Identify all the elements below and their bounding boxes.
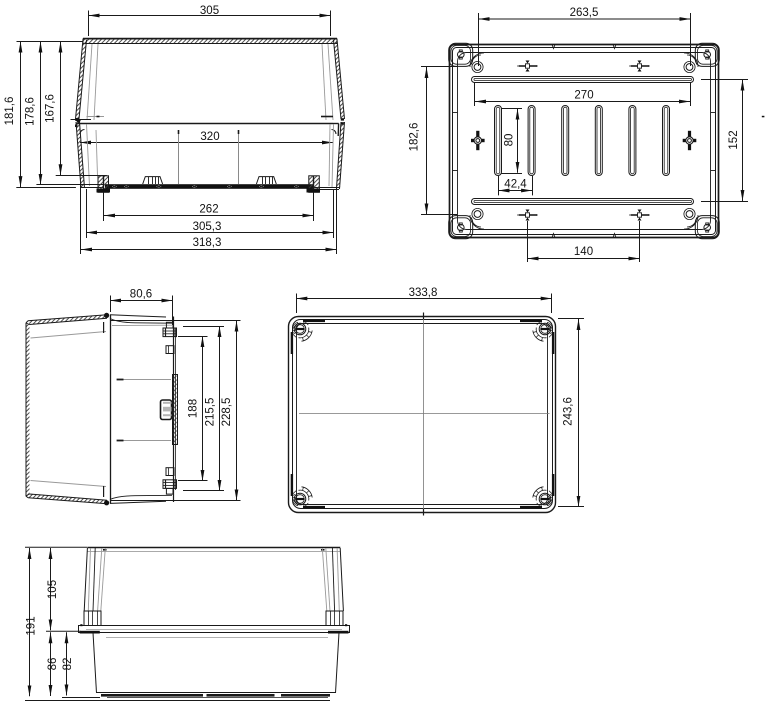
svg-text:215,5: 215,5	[205, 398, 217, 427]
svg-text:167,6: 167,6	[45, 94, 57, 123]
svg-text:82: 82	[62, 658, 74, 671]
svg-text:263,5: 263,5	[570, 7, 599, 19]
svg-text:86: 86	[47, 658, 59, 671]
svg-text:140: 140	[574, 246, 593, 258]
svg-text:270: 270	[574, 90, 593, 102]
svg-text:80: 80	[504, 134, 516, 147]
svg-text:262: 262	[199, 204, 218, 216]
svg-text:80,6: 80,6	[130, 289, 152, 301]
svg-text:182,6: 182,6	[409, 123, 421, 152]
svg-text:181,6: 181,6	[4, 97, 16, 126]
svg-text:243,6: 243,6	[563, 397, 575, 426]
svg-text:333,8: 333,8	[409, 287, 438, 299]
svg-text:178,6: 178,6	[25, 97, 37, 126]
svg-text:305: 305	[200, 5, 219, 17]
svg-text:42,4: 42,4	[504, 179, 527, 191]
svg-text:105: 105	[47, 580, 59, 599]
svg-text:320: 320	[200, 131, 219, 143]
svg-text:152: 152	[728, 130, 740, 149]
svg-text:191: 191	[26, 616, 38, 635]
svg-text:228,5: 228,5	[221, 398, 233, 427]
svg-text:188: 188	[188, 399, 200, 418]
svg-text:318,3: 318,3	[193, 237, 222, 249]
svg-text:305,3: 305,3	[193, 221, 222, 233]
